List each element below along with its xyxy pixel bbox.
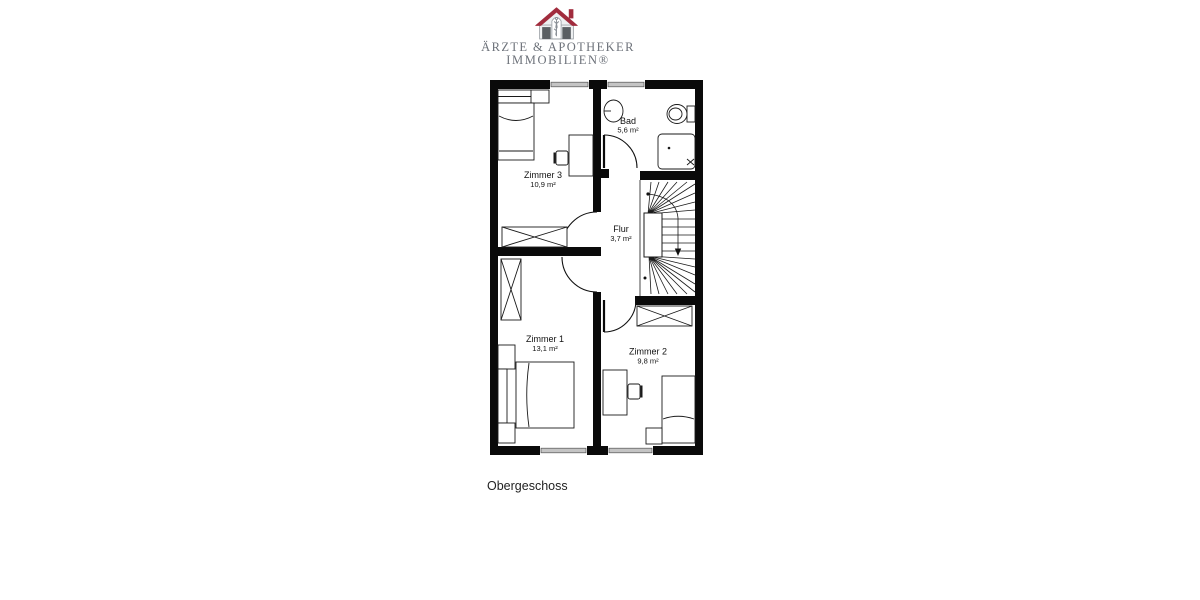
room-area-zimmer2: 9,8 m² — [637, 357, 659, 366]
stair-direction-arrow — [675, 249, 681, 257]
wardrobe-symbol — [637, 306, 692, 326]
room-label-zimmer2: Zimmer 2 — [629, 347, 667, 357]
brand-name: ÄRZTE & APOTHEKER IMMOBILIEN® — [438, 41, 678, 67]
nightstand-symbol — [646, 428, 662, 444]
single-bed-symbol — [662, 376, 695, 443]
brand-name-line2: IMMOBILIEN® — [438, 54, 678, 67]
door-bad — [604, 135, 637, 168]
desk-symbol — [603, 370, 627, 415]
chair-symbol — [628, 384, 642, 399]
room-zimmer2-furniture — [603, 306, 695, 444]
wardrobe-symbol — [501, 259, 521, 320]
dresser-symbol — [498, 345, 515, 443]
room-label-bad: Bad — [620, 116, 636, 126]
room-area-flur: 3,7 m² — [610, 234, 632, 243]
floor-plan: Zimmer 3 10,9 m² Bad 5,6 m² Flur 3,7 m² … — [490, 80, 703, 455]
shelf-symbol — [498, 90, 549, 103]
room-label-zimmer3: Zimmer 3 — [524, 170, 562, 180]
desk-symbol — [569, 135, 593, 176]
room-label-flur: Flur — [613, 224, 629, 234]
door-zimmer2 — [604, 300, 636, 332]
room-area-bad: 5,6 m² — [617, 126, 639, 135]
house-caduceus-icon — [535, 6, 578, 40]
room-zimmer3-furniture — [498, 90, 593, 247]
room-area-zimmer3: 10,9 m² — [530, 180, 556, 189]
double-bed-symbol — [516, 362, 574, 428]
window-zimmer3 — [550, 80, 589, 89]
staircase-icon — [640, 180, 695, 296]
chair-symbol — [555, 151, 569, 165]
window-zimmer1 — [540, 446, 587, 455]
room-label-zimmer1: Zimmer 1 — [526, 334, 564, 344]
wardrobe-symbol — [502, 227, 567, 247]
bed-symbol — [498, 103, 534, 160]
window-zimmer2 — [608, 446, 653, 455]
room-area-zimmer1: 13,1 m² — [532, 344, 558, 353]
door-zimmer1 — [562, 257, 597, 292]
shower-symbol — [658, 134, 695, 169]
room-bad-fixtures — [604, 100, 695, 169]
window-bad — [607, 80, 645, 89]
toilet-symbol — [667, 105, 695, 124]
floor-label: Obergeschoss — [487, 479, 568, 493]
page: ÄRZTE & APOTHEKER IMMOBILIEN® — [0, 0, 1200, 600]
